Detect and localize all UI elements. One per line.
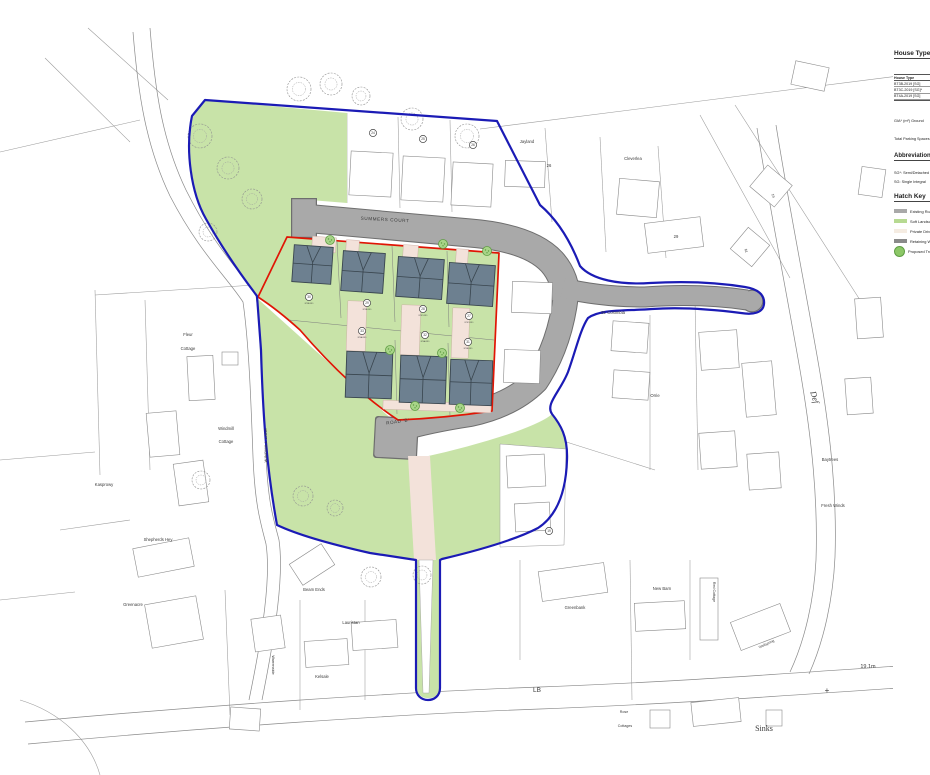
house-type-table: House Type BT3B-2019 [SG] BT3C-2019 [SG]… <box>894 74 930 101</box>
building-outline <box>699 431 737 469</box>
road-name-label: WINDMILL LANE <box>264 428 268 463</box>
proposed-tree-icon <box>386 346 395 355</box>
tree-dot <box>413 404 414 405</box>
abbreviations-heading: Abbreviations <box>894 153 930 161</box>
proposed-tree-icon <box>326 236 335 245</box>
tree-dot <box>444 243 445 244</box>
map-label: Lauristan <box>342 620 360 625</box>
plot-number: 26 <box>471 143 475 147</box>
plot-number: 29 <box>365 301 369 305</box>
building-outline <box>742 361 777 417</box>
tree-dot <box>329 241 330 242</box>
building-outline <box>747 452 781 490</box>
map-label: Def <box>808 389 822 406</box>
house-roof <box>396 256 445 299</box>
building-outline <box>845 377 873 415</box>
plot-number: 30 <box>307 295 311 299</box>
map-label: Warrenside <box>271 655 275 674</box>
legend-swatch <box>894 209 907 214</box>
hatch-key-heading: Hatch Key <box>894 193 930 202</box>
map-label: Cleverlea <box>624 156 642 161</box>
abbrev-line: SG: Single Integral <box>894 180 930 184</box>
map-label: + <box>825 686 830 695</box>
map-label: LB <box>533 687 541 694</box>
house-type-heading: House Type <box>894 50 930 59</box>
legend-label: Private Drive <box>910 229 930 234</box>
building-outline <box>289 544 334 586</box>
tree-dot <box>486 252 487 253</box>
building-outline <box>511 281 552 313</box>
house-roof <box>399 355 447 404</box>
building-outline <box>730 227 769 266</box>
house-type-row: BT4A-2019 [SG] <box>894 94 930 100</box>
proposed-tree-icon <box>483 247 492 256</box>
building-outline <box>612 370 650 400</box>
house-roof <box>345 351 393 399</box>
map-label: Baytrees <box>822 457 839 462</box>
legend-label: Retaining Wall <box>910 239 930 244</box>
existing-tree-icon <box>401 108 423 130</box>
legend-swatch <box>894 229 907 234</box>
plot-marker: 25 <box>419 135 426 142</box>
tree-dot <box>389 351 390 352</box>
map-label: St. Colombia <box>601 310 626 315</box>
plot-marker: 32BT4A-2019 <box>421 331 430 343</box>
building-outline <box>349 151 393 197</box>
map-label: Beam Ends <box>303 587 325 592</box>
building-outline <box>750 165 793 207</box>
proposed-tree-icon <box>456 404 465 413</box>
plot-number: 28 <box>421 307 425 311</box>
tree-dot <box>442 245 443 246</box>
map-label: 26 <box>547 163 552 168</box>
plot-marker: 30BT3B-2019 <box>305 293 314 305</box>
building-outline <box>634 601 685 632</box>
tree-canopy <box>483 247 492 256</box>
building-outline <box>514 502 550 532</box>
house-roof <box>447 262 496 306</box>
map-label: Jayland <box>520 139 535 144</box>
building-outline <box>730 603 790 650</box>
plot-number: 24 <box>371 131 375 135</box>
plot-marker: 27BT3C-2019 <box>465 312 474 324</box>
map-label: Fleur <box>183 332 193 337</box>
plot-house-type-code: BT3B-2019 <box>464 348 473 350</box>
building-outline <box>222 352 238 365</box>
plot-marker: 29BT3B-2019 <box>363 299 372 311</box>
map-label: Rose <box>620 710 628 714</box>
building-outline <box>791 61 829 92</box>
existing-tree-icon <box>325 78 337 90</box>
plot-house-type-code: BT4A-2019 <box>421 340 430 343</box>
building-outline <box>855 297 884 339</box>
legend-row: Private Drive <box>894 226 930 236</box>
gia-note: GIA* (m²) Ground <box>894 119 930 123</box>
legend-label: Soft Landscaping <box>910 219 930 224</box>
plot-house-type-code: BT3C-2019 <box>465 322 474 324</box>
building-outline <box>538 563 608 602</box>
tree-dot <box>458 406 459 407</box>
proposed-tree-icon <box>438 349 447 358</box>
existing-tree-icon <box>352 87 370 105</box>
building-outline <box>251 615 285 652</box>
existing-tree-icon <box>460 129 473 142</box>
building-outline <box>304 639 349 668</box>
tree-dot <box>414 407 415 408</box>
plot-house-type-code: BT3B-2019 <box>363 309 372 311</box>
parking-note: Total Parking Spaces <box>894 137 930 141</box>
tree-dot <box>485 249 486 250</box>
map-label: Shepherds Hey <box>144 537 174 542</box>
building-outline <box>146 411 180 457</box>
existing-tree-icon <box>320 73 342 95</box>
map-label: Greenbank <box>565 605 587 610</box>
tree-dot <box>388 348 389 349</box>
map-label: New Barn <box>653 586 672 591</box>
plot-number: 31 <box>466 340 470 344</box>
house-roof <box>341 251 386 294</box>
plot-number: 25 <box>421 137 425 141</box>
house-roof <box>449 359 493 405</box>
map-label: Sinks <box>755 724 773 733</box>
house-roof <box>292 245 333 285</box>
existing-tree-icon <box>361 567 381 587</box>
building-outline <box>229 707 260 731</box>
plot-marker: 31BT3B-2019 <box>464 338 473 350</box>
building-outline <box>611 321 649 353</box>
legend-row: Soft Landscaping <box>894 216 930 226</box>
tree-dot <box>459 409 460 410</box>
plot-marker: 19 <box>545 527 552 534</box>
map-label: Cottage <box>181 346 196 351</box>
map-label: Cottages <box>618 724 633 728</box>
tree-dot <box>328 238 329 239</box>
abbrev-line: SG*: Semi/Detached <box>894 171 930 175</box>
site-plan-map: 24252630BT3B-201929BT3B-201928BT3C-20192… <box>0 0 930 775</box>
building-outline <box>617 178 660 217</box>
tree-dot <box>461 407 462 408</box>
tree-dot <box>443 352 444 353</box>
plot-marker: 26 <box>469 141 476 148</box>
plot-number: 33 <box>360 329 364 333</box>
existing-tree-icon <box>292 82 305 95</box>
building-outline <box>691 698 741 727</box>
tree-dot <box>441 354 442 355</box>
map-label: Windmill <box>218 426 234 431</box>
proposed-tree-swatch-icon <box>894 246 905 257</box>
legend-label: Existing Road <box>910 209 930 214</box>
plot-house-type-code: BT4A-2019 <box>358 336 367 339</box>
plot-marker: 28BT3C-2019 <box>419 305 428 317</box>
tree-dot <box>391 349 392 350</box>
map-label: Kelsale <box>315 674 329 679</box>
legend-row: Proposed Tree <box>894 246 930 256</box>
tree-canopy <box>386 346 395 355</box>
legend-row: Retaining Wall <box>894 236 930 246</box>
map-label: Kasprowy <box>95 482 114 487</box>
legend-swatch <box>894 219 907 224</box>
tree-canopy <box>411 402 420 411</box>
plot-marker: 33BT4A-2019 <box>358 327 367 339</box>
tree-canopy <box>438 349 447 358</box>
building-outline <box>506 454 546 488</box>
tree-dot <box>440 351 441 352</box>
building-outline <box>401 156 445 202</box>
legend-label: Proposed Tree <box>908 249 930 254</box>
plot-number: 19 <box>547 529 551 533</box>
map-label: 29 <box>674 234 679 239</box>
existing-tree-icon <box>366 572 377 583</box>
legend-row: Existing Road <box>894 206 930 216</box>
proposed-tree-icon <box>411 402 420 411</box>
hatch-key-list: Existing RoadSoft LandscapingPrivate Dri… <box>894 206 930 256</box>
map-label: Orrie <box>650 393 660 398</box>
tree-dot <box>441 242 442 243</box>
building-outline <box>173 460 209 506</box>
building-outline <box>858 166 886 197</box>
plot-house-type-code: BT3B-2019 <box>305 303 314 305</box>
building-outline <box>650 710 670 728</box>
tree-dot <box>488 250 489 251</box>
tree-dot <box>331 239 332 240</box>
building-outline <box>187 355 215 400</box>
building-outline <box>145 596 204 648</box>
plot-number: 32 <box>423 333 427 337</box>
tree-dot <box>416 405 417 406</box>
proposed-tree-icon <box>439 240 448 249</box>
map-label: Greenacre <box>123 602 143 607</box>
map-label: Cottage <box>219 439 234 444</box>
tree-canopy <box>439 240 448 249</box>
plot-marker: 24 <box>369 129 376 136</box>
map-label: 19.1m <box>860 664 876 670</box>
plot-house-type-code: BT3C-2019 <box>419 315 428 317</box>
existing-tree-icon <box>287 77 311 101</box>
legend-panel: House Type House Type BT3B-2019 [SG] BT3… <box>893 0 930 775</box>
site-plan-sheet: 24252630BT3B-201929BT3B-201928BT3C-20192… <box>0 0 930 775</box>
building-outline <box>503 349 540 383</box>
tree-canopy <box>326 236 335 245</box>
map-label: Fresh Winds <box>821 503 845 508</box>
legend-swatch <box>894 239 907 244</box>
tree-canopy <box>456 404 465 413</box>
plot-number: 27 <box>467 314 471 318</box>
map-label: Red Cottage <box>712 582 716 602</box>
existing-tree-icon <box>356 91 366 101</box>
building-outline <box>133 538 194 577</box>
building-outline <box>451 162 493 207</box>
building-outline <box>699 330 740 371</box>
